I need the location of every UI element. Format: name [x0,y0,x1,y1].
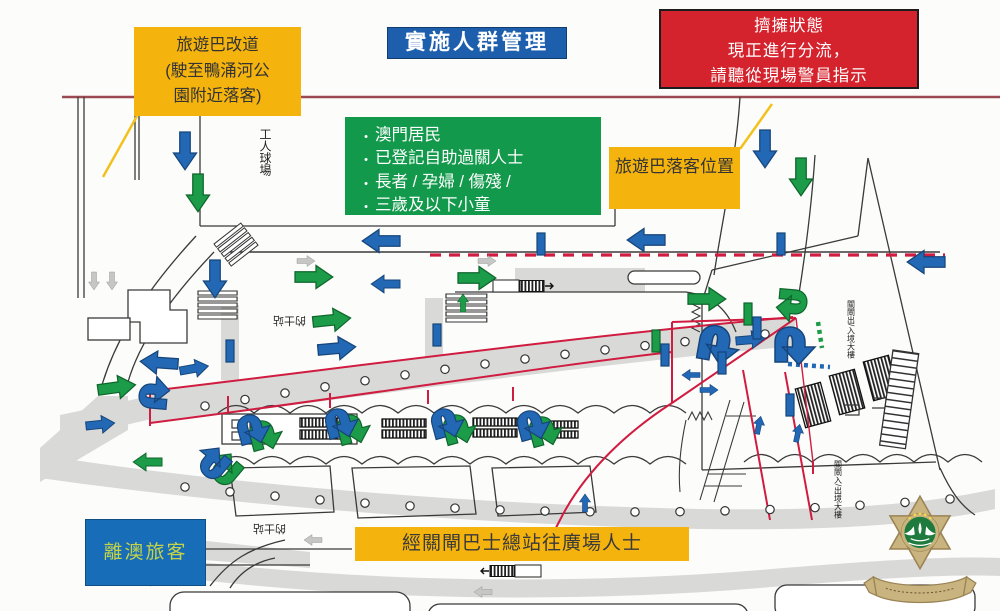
list-item: •已登記自助過關人士 [357,147,601,170]
flow-arrow [458,266,496,289]
label-taxi-stand-lower: 的士站 [253,522,286,536]
stop-marker [226,340,234,362]
u-turn-arrow [138,375,171,409]
bullet-icon: • [357,153,375,169]
callout-line [103,116,137,177]
flow-arrow [627,228,665,251]
stop-marker [652,330,660,352]
bullet-icon: • [357,200,375,216]
stop-marker [537,233,545,255]
flow-arrow [371,275,400,293]
bus-diversion-notice: 旅遊巴改道 (駛至鴨涌河公 園附近落客) [134,27,301,116]
departing-passengers-label: 離澳旅客 [85,519,206,586]
flow-arrow [362,229,400,252]
stop-marker [753,317,761,339]
flow-arrow [178,357,209,379]
flow-arrow [297,256,315,267]
blue-dotted-guide [788,364,830,367]
flow-arrow [133,453,162,471]
bullet-icon: • [357,130,375,146]
list-item: •三歲及以下小童 [357,194,601,217]
flow-arrow [89,272,100,290]
zebra-crossings [198,223,487,322]
flow-arrow [789,158,812,196]
flow-arrow [173,132,196,170]
crowd-management-plan: 工人球場 的士站 的士站 關閘出/入境大樓 關閘入/出境大樓 旅遊巴改道 (駛至… [0,0,1000,611]
flow-arrow [139,350,178,376]
stop-marker [744,303,752,325]
flow-arrow [753,130,776,168]
flow-arrow [186,174,209,212]
stop-marker [433,324,441,346]
congestion-notice: 擠擁狀態 現正進行分流， 請聽從現場警員指示 [659,9,919,89]
flow-arrow [478,256,496,267]
stop-marker [661,344,669,366]
bus-icon [481,565,541,577]
label-workers-stadium: 工人球場 [258,128,272,177]
ribbon-banner [873,577,966,603]
bus-dropoff-notice: 旅遊巴落客位置 [609,147,740,209]
flow-arrow [700,385,718,396]
flow-arrow [304,535,322,546]
flow-arrow [312,307,352,334]
priority-groups-list: •澳門居民 •已登記自助過關人士 •長者 / 孕婦 / 傷殘 / •三歲及以下小… [345,117,601,215]
bus-icon [493,280,553,292]
flow-arrow [295,265,333,288]
green-dotted-guide [818,322,822,348]
label-border-building-lower: 關閘入/出境大樓 [834,460,843,519]
label-border-building-upper: 關閘出/入境大樓 [847,300,856,359]
stop-marker [718,352,726,374]
bullet-icon: • [357,177,375,193]
label-taxi-stand-upper: 的士站 [273,314,306,328]
flow-arrow [791,423,806,443]
stop-marker [777,233,785,255]
stop-marker [786,394,794,416]
list-item: •澳門居民 [357,124,601,147]
page-title: 實施人群管理 [387,27,567,59]
flow-arrow [107,272,118,290]
macau-security-police-badge [862,490,978,609]
flow-arrow [317,335,357,361]
flow-arrow [682,370,700,381]
u-turn-arrow [775,327,815,365]
list-item: •長者 / 孕婦 / 傷殘 / [357,171,601,194]
via-bus-terminal-label: 經關閘巴士總站往廣場人士 [355,527,689,561]
